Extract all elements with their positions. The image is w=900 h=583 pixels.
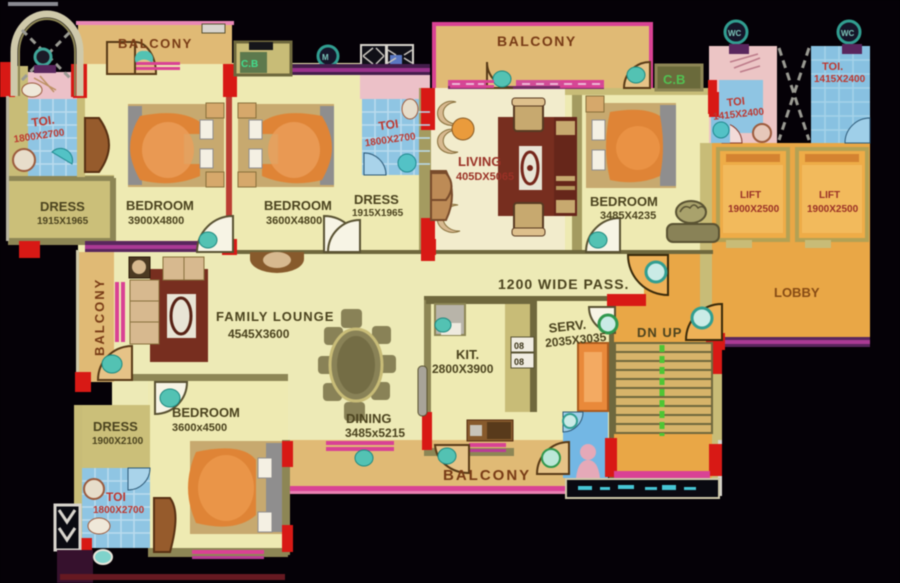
svg-text:BALCONY: BALCONY (443, 467, 531, 484)
svg-text:DRESS: DRESS (354, 192, 399, 207)
svg-text:08: 08 (514, 357, 524, 367)
svg-text:3900X4800: 3900X4800 (128, 215, 184, 227)
svg-text:LIFT: LIFT (740, 190, 761, 201)
svg-text:KIT.: KIT. (456, 347, 479, 362)
svg-text:DN UP: DN UP (637, 325, 682, 340)
svg-text:BALCONY: BALCONY (92, 278, 107, 356)
svg-text:LOBBY: LOBBY (774, 285, 820, 300)
svg-text:DRESS: DRESS (93, 419, 138, 434)
svg-text:1915X1965: 1915X1965 (37, 216, 89, 227)
svg-text:TOI: TOI (106, 490, 126, 504)
svg-text:1200 WIDE PASS.: 1200 WIDE PASS. (498, 276, 629, 292)
svg-text:2800X3900: 2800X3900 (432, 362, 494, 376)
svg-text:BALCONY: BALCONY (497, 33, 577, 49)
svg-text:1900X2500: 1900X2500 (807, 204, 859, 215)
svg-text:3600X4800: 3600X4800 (266, 215, 322, 227)
svg-text:1915X1965: 1915X1965 (352, 208, 404, 219)
svg-text:4545X3600: 4545X3600 (228, 327, 290, 341)
svg-text:1900X2100: 1900X2100 (92, 436, 144, 447)
svg-text:WC: WC (728, 29, 742, 38)
svg-text:BEDROOM: BEDROOM (126, 198, 194, 213)
svg-text:WC: WC (841, 29, 855, 38)
svg-text:DINING: DINING (346, 411, 392, 426)
svg-text:1800X2700: 1800X2700 (93, 505, 145, 516)
svg-text:FAMILY LOUNGE: FAMILY LOUNGE (216, 309, 334, 324)
svg-text:LIVING: LIVING (458, 154, 501, 169)
svg-text:1415X2400: 1415X2400 (814, 74, 866, 85)
svg-text:08: 08 (514, 341, 524, 351)
svg-text:TOI: TOI (726, 96, 745, 110)
svg-text:M: M (322, 53, 329, 62)
svg-text:BEDROOM: BEDROOM (590, 194, 658, 209)
svg-text:BALCONY: BALCONY (118, 36, 193, 51)
svg-text:405DX5065: 405DX5065 (456, 171, 514, 183)
svg-text:C.B: C.B (241, 59, 258, 70)
svg-text:TOI: TOI (378, 117, 400, 134)
svg-text:DRESS: DRESS (40, 199, 85, 214)
svg-text:TOI.: TOI. (822, 61, 843, 73)
svg-text:C.B: C.B (663, 72, 685, 87)
svg-text:3485x5215: 3485x5215 (345, 426, 405, 440)
svg-text:LIFT: LIFT (819, 190, 840, 201)
svg-text:BEDROOM: BEDROOM (264, 198, 332, 213)
svg-text:BEDROOM: BEDROOM (172, 405, 240, 420)
svg-text:3485X4235: 3485X4235 (600, 210, 656, 222)
svg-text:1900X2500: 1900X2500 (728, 204, 780, 215)
svg-text:3600x4500: 3600x4500 (172, 422, 227, 434)
